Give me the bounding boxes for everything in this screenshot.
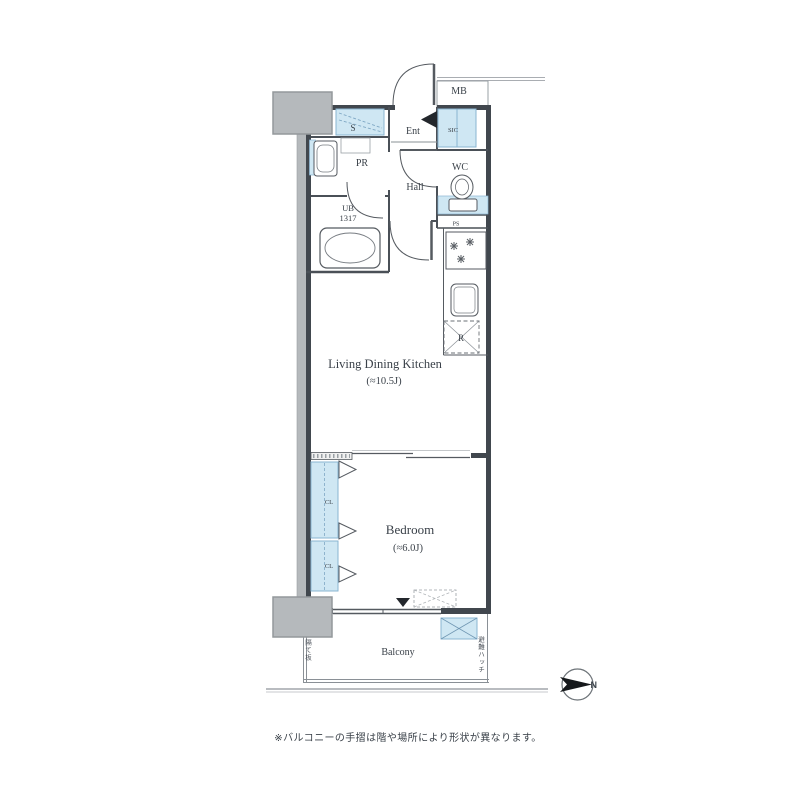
balcony-right-hatch-note: 避難ハッチ [477, 636, 484, 678]
balcony-left-partition-note: 隔て板 [304, 639, 311, 689]
burner-icons [450, 238, 474, 263]
toilet [449, 175, 477, 211]
window-marker-icon [396, 598, 410, 607]
kitchen [444, 228, 489, 355]
north-label: N [591, 680, 598, 690]
closet-door-icons [339, 461, 356, 582]
floor-plan-page: MB SIC [0, 0, 800, 800]
powder-room-label: PR [356, 158, 369, 169]
washbasin [314, 141, 337, 176]
closet-lower-label: CL [325, 563, 333, 570]
caption-note: ※バルコニーの手摺は階や場所により形状が異なります。 [0, 729, 800, 744]
unit-bath: UB 1317 [320, 182, 383, 268]
closet-upper-label: CL [325, 499, 333, 506]
meter-box: MB [437, 81, 488, 107]
ground-line [266, 689, 548, 692]
ac-unit-space [414, 590, 456, 607]
bedroom-label: Bedroom [386, 522, 434, 537]
balcony-window [333, 610, 441, 614]
evacuation-hatch [441, 618, 477, 639]
storage-s: S [336, 109, 384, 153]
ldk-label: Living Dining Kitchen [328, 357, 443, 371]
meter-box-label: MB [451, 86, 467, 97]
wc-label: WC [452, 162, 468, 173]
entrance-arrow-icon [421, 111, 437, 128]
compass: N [560, 669, 597, 700]
closet-upper: CL [311, 462, 338, 538]
shoe-closet-label: SIC [448, 127, 458, 134]
unit-bath-label: UB [342, 203, 354, 213]
floor-plan-canvas: MB SIC [0, 0, 800, 800]
bedroom-room: Bedroom (≈6.0J) [386, 522, 434, 554]
bathtub [320, 228, 380, 268]
entrance-door [393, 64, 434, 105]
closet-lower: CL [311, 541, 338, 591]
sink [451, 284, 478, 316]
unit-bath-size: 1317 [340, 213, 357, 223]
corridor-lines [437, 78, 545, 81]
north-arrow-icon [560, 677, 592, 692]
refrigerator-label: R [458, 333, 464, 343]
ldk-room: Living Dining Kitchen (≈10.5J) [328, 357, 443, 387]
entrance-label: Ent [406, 126, 420, 137]
balcony-label: Balcony [381, 647, 414, 658]
pipe-space-label: PS [453, 222, 460, 228]
shoe-closet: SIC [438, 109, 476, 147]
bedroom-size-label: (≈6.0J) [393, 543, 423, 554]
hall-ldk-door [390, 221, 432, 260]
ldk-size-label: (≈10.5J) [366, 376, 402, 387]
sliding-partition [311, 451, 470, 460]
stove [446, 232, 486, 269]
hall-label: Hall [406, 182, 423, 193]
storage-s-label: S [350, 123, 355, 133]
